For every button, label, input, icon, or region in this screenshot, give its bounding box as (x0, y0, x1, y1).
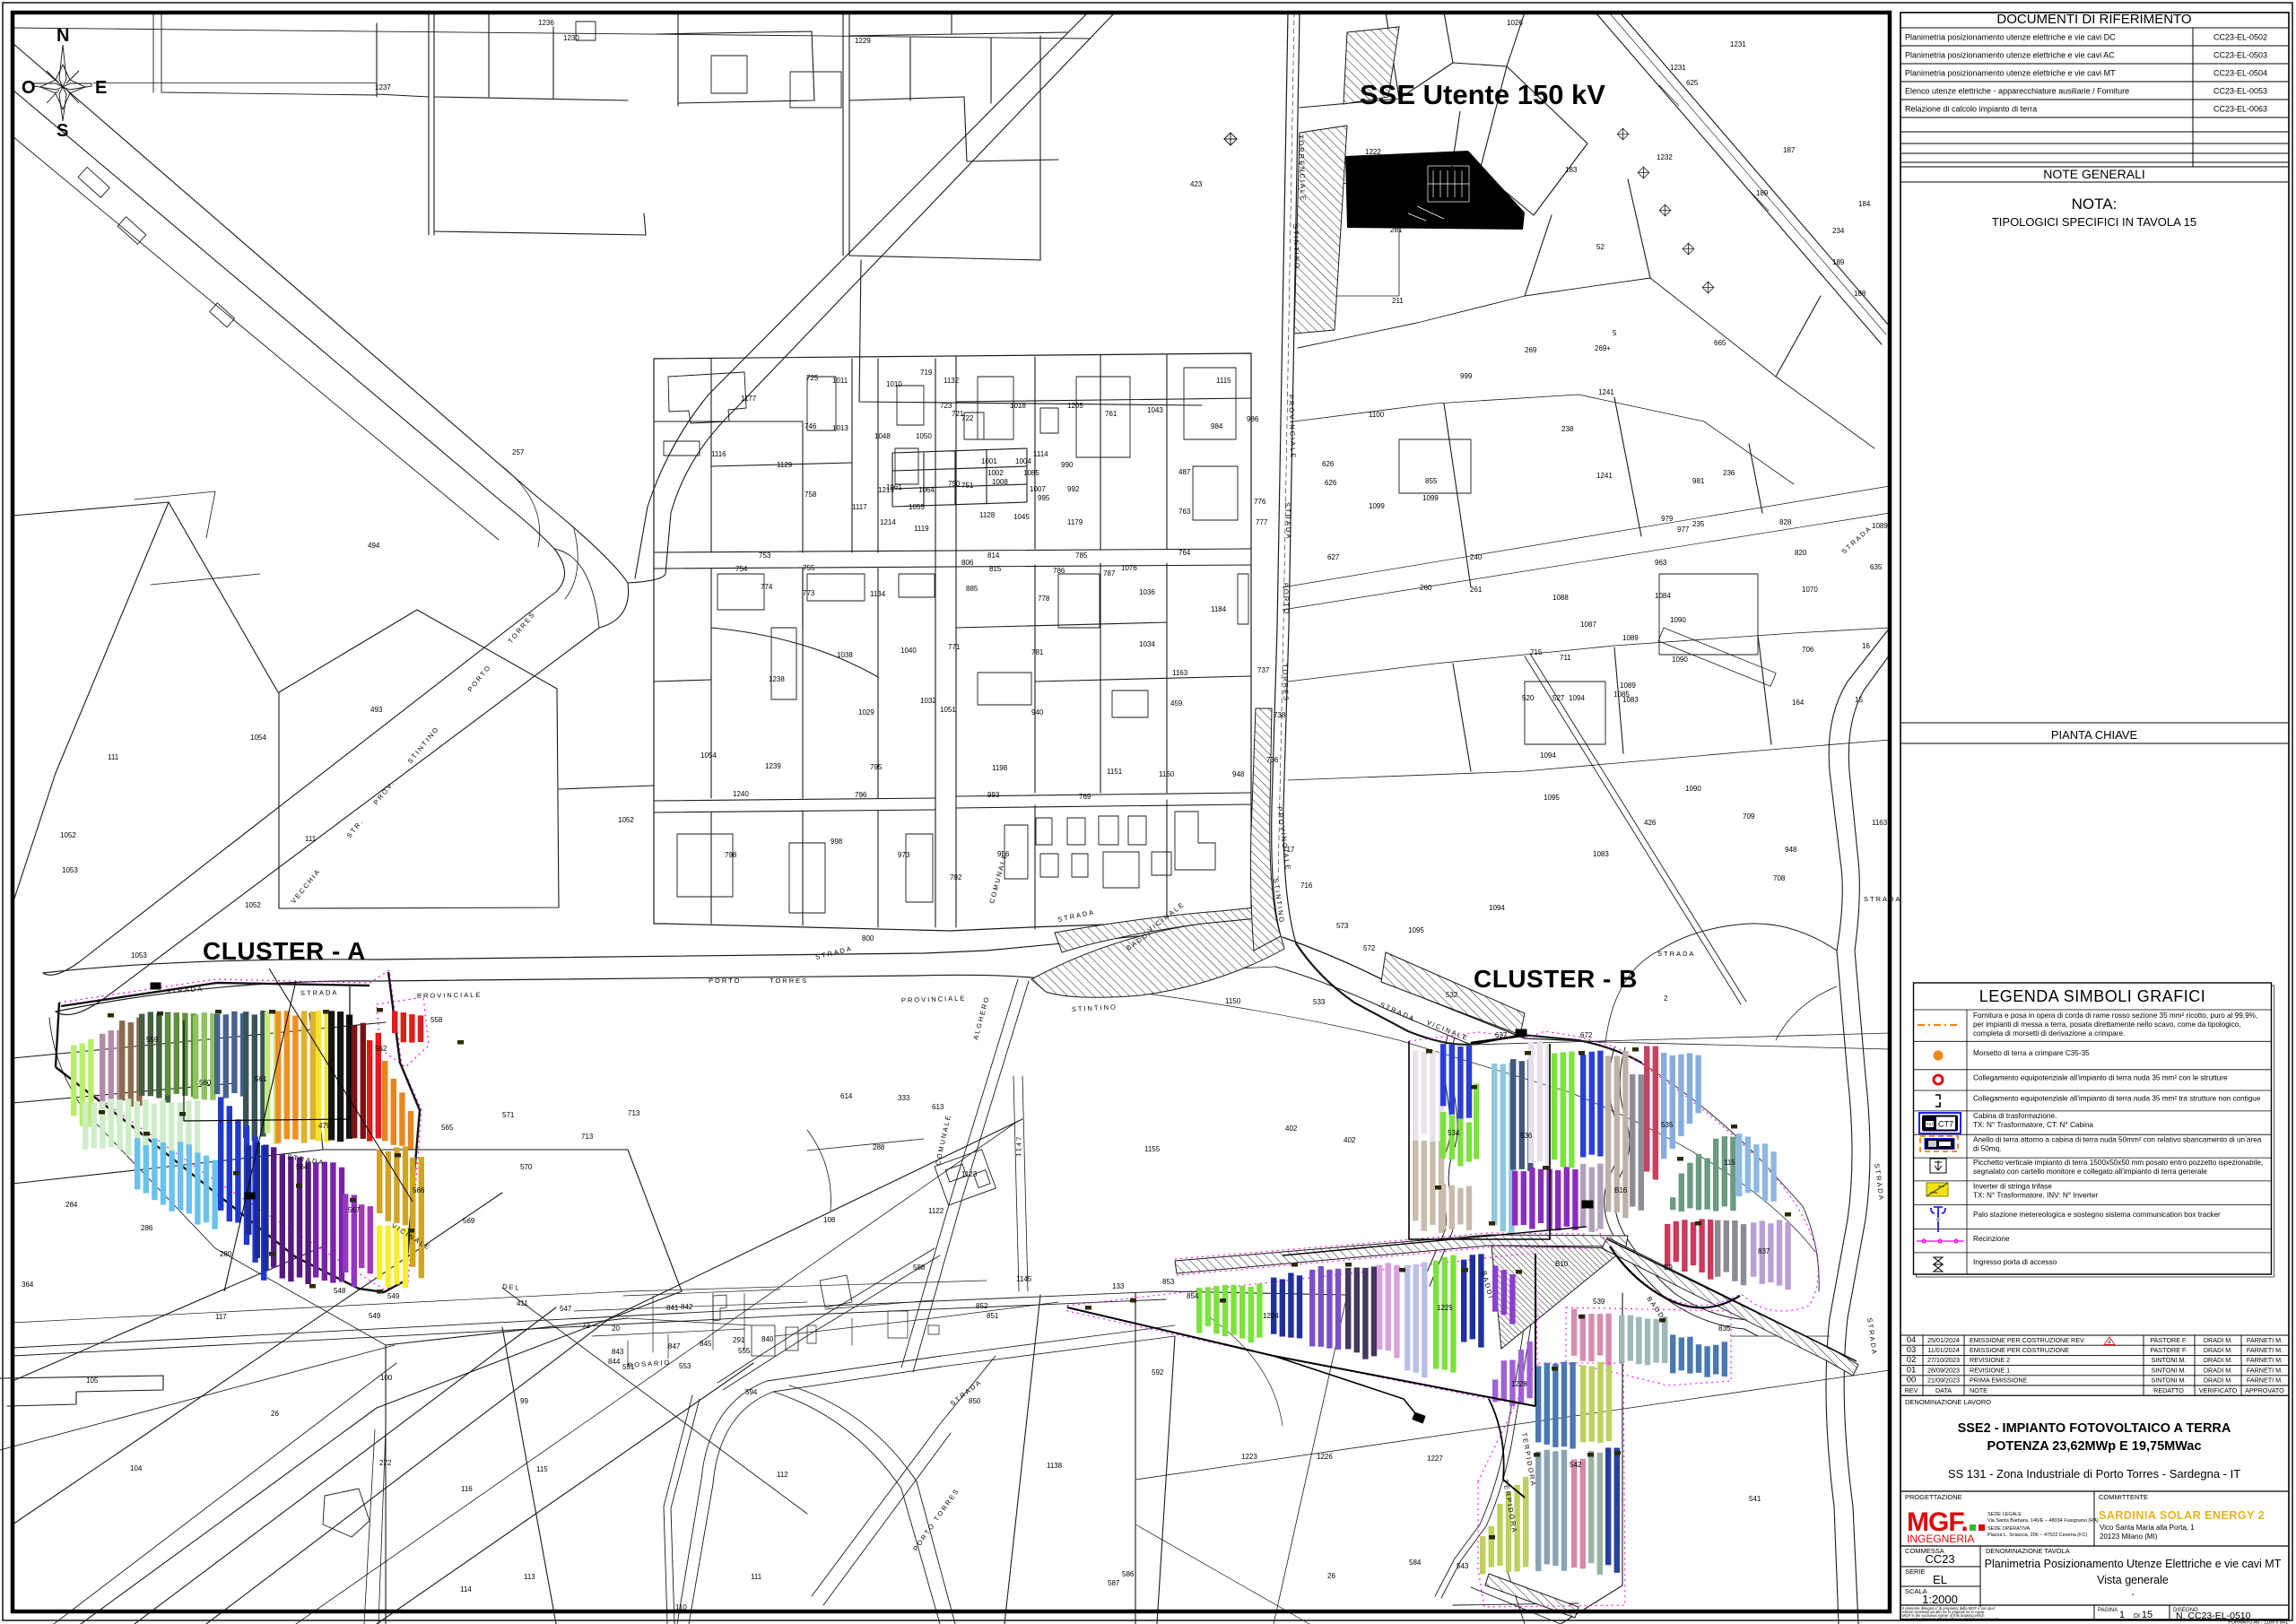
svg-text:CLUSTER - A: CLUSTER - A (203, 937, 366, 965)
svg-text:1237: 1237 (375, 83, 391, 91)
svg-text:S: S (57, 121, 68, 141)
svg-text:1238: 1238 (769, 675, 785, 683)
svg-text:993: 993 (987, 791, 1000, 799)
svg-text:183: 183 (1565, 166, 1578, 174)
svg-text:111: 111 (305, 835, 317, 843)
svg-text:291: 291 (733, 1336, 745, 1344)
svg-text:DRADI M.: DRADI M. (2204, 1376, 2232, 1385)
svg-text:333: 333 (898, 1094, 910, 1102)
svg-text:1241: 1241 (1596, 472, 1613, 480)
svg-text:DENOMINAZIONE LAVORO: DENOMINAZIONE LAVORO (1905, 1398, 1991, 1406)
svg-text:SS 131 - Zona Industriale di P: SS 131 - Zona Industriale di Porto Torre… (1948, 1467, 2240, 1481)
svg-text:613: 613 (932, 1103, 944, 1111)
svg-text:573: 573 (1336, 922, 1349, 930)
svg-text:116: 116 (461, 1485, 473, 1493)
svg-text:Elenco utenze elettriche - app: Elenco utenze elettriche - apparecchiatu… (1905, 87, 2129, 96)
svg-text:520: 520 (1522, 694, 1535, 702)
svg-text:1119: 1119 (914, 525, 929, 533)
svg-text:-: - (2131, 1590, 2134, 1600)
svg-text:1231: 1231 (1730, 40, 1746, 48)
svg-text:Piazza L. Sciascia, 206 – 4752: Piazza L. Sciascia, 206 – 47522 Cesena (… (1987, 1533, 2087, 1538)
svg-text:402: 402 (1285, 1125, 1298, 1133)
svg-text:SARDINIA SOLAR ENERGY 2: SARDINIA SOLAR ENERGY 2 (2099, 1509, 2265, 1522)
svg-text:672: 672 (1580, 1031, 1593, 1039)
svg-text:117: 117 (215, 1313, 227, 1321)
svg-text:786: 786 (1053, 567, 1065, 575)
svg-text:571: 571 (502, 1111, 515, 1119)
svg-text:852: 852 (976, 1302, 988, 1310)
svg-text:di 50mq.: di 50mq. (1973, 1145, 2001, 1153)
svg-text:755: 755 (803, 564, 815, 572)
svg-text:25/01/2024: 25/01/2024 (1927, 1336, 1960, 1344)
svg-text:637: 637 (1495, 1031, 1508, 1039)
svg-text:STRADA: STRADA (1283, 502, 1292, 541)
svg-text:Vista generale: Vista generale (2097, 1574, 2169, 1586)
svg-text:572: 572 (1363, 944, 1376, 952)
svg-text:999: 999 (1460, 372, 1473, 380)
svg-text:EL: EL (1933, 1573, 1947, 1586)
svg-text:TX7: TX7 (1926, 1123, 1935, 1127)
svg-text:Cabina di trasformazione.: Cabina di trasformazione. (1973, 1112, 2057, 1120)
svg-text:1052: 1052 (618, 816, 634, 824)
svg-text:851: 851 (987, 1312, 999, 1320)
svg-text:1040: 1040 (900, 647, 917, 655)
svg-text:1223: 1223 (1241, 1453, 1257, 1461)
svg-text:781: 781 (1031, 648, 1044, 656)
svg-text:B9: B9 (1664, 1264, 1673, 1272)
svg-text:843: 843 (612, 1348, 624, 1356)
svg-text:Picchetto verticale impianto d: Picchetto verticale impianto di terra 15… (1973, 1159, 2263, 1167)
svg-text:00: 00 (1907, 1376, 1917, 1385)
svg-text:986: 986 (1247, 415, 1259, 423)
svg-text:1007: 1007 (1030, 485, 1046, 493)
svg-text:112: 112 (777, 1471, 788, 1479)
svg-text:835: 835 (1718, 1324, 1731, 1333)
svg-text:627: 627 (1327, 553, 1340, 561)
svg-text:948: 948 (1232, 770, 1245, 778)
svg-text:1095: 1095 (1408, 926, 1424, 934)
svg-text:164: 164 (1792, 699, 1805, 707)
svg-text:FARNETI M.: FARNETI M. (2247, 1346, 2283, 1354)
svg-text:792: 792 (950, 873, 962, 881)
svg-text:769: 769 (1079, 793, 1091, 801)
svg-text:776: 776 (1254, 498, 1266, 506)
svg-text:847: 847 (668, 1342, 681, 1350)
svg-text:DENOMINAZIONE TAVOLA: DENOMINAZIONE TAVOLA (1986, 1547, 2070, 1555)
svg-text:1089: 1089 (1622, 634, 1639, 642)
svg-text:584: 584 (1409, 1559, 1422, 1567)
svg-text:963: 963 (1655, 559, 1667, 567)
svg-text:1089: 1089 (1620, 682, 1636, 690)
svg-text:820: 820 (1795, 549, 1807, 557)
svg-text:459: 459 (1170, 699, 1183, 708)
svg-text:746: 746 (804, 422, 817, 430)
svg-text:235: 235 (1692, 520, 1705, 528)
svg-text:592: 592 (1152, 1368, 1164, 1376)
svg-text:FARNETI M.: FARNETI M. (2247, 1356, 2283, 1364)
svg-text:940: 940 (1031, 708, 1044, 716)
svg-text:280: 280 (220, 1250, 232, 1258)
svg-text:1099: 1099 (1422, 494, 1439, 502)
svg-text:CLUSTER - B: CLUSTER - B (1474, 965, 1638, 993)
svg-text:16: 16 (1862, 642, 1870, 650)
svg-text:15: 15 (1855, 696, 1863, 704)
svg-text:706: 706 (1802, 646, 1814, 654)
svg-text:EMISSIONE PER COSTRUZIONE: EMISSIONE PER COSTRUZIONE (1970, 1346, 2069, 1354)
svg-text:990: 990 (1061, 461, 1074, 469)
svg-text:853: 853 (1162, 1278, 1175, 1286)
svg-text:719: 719 (920, 369, 933, 377)
svg-text:03: 03 (1907, 1345, 1917, 1355)
svg-text:555: 555 (738, 1347, 751, 1355)
svg-text:716: 716 (1300, 881, 1313, 890)
svg-text:1236: 1236 (538, 19, 554, 27)
svg-text:184: 184 (1858, 200, 1871, 208)
svg-text:111: 111 (751, 1573, 762, 1581)
svg-text:614: 614 (840, 1092, 853, 1100)
svg-text:850: 850 (969, 1397, 981, 1405)
svg-text:272: 272 (379, 1459, 392, 1467)
svg-text:1179: 1179 (1067, 518, 1083, 526)
svg-text:1045: 1045 (1013, 513, 1030, 521)
svg-text:713: 713 (628, 1109, 640, 1117)
svg-text:984: 984 (1211, 422, 1223, 430)
svg-text:STINTINO: STINTINO (1291, 224, 1301, 270)
svg-text:133: 133 (1112, 1282, 1125, 1290)
svg-text:1229: 1229 (855, 37, 871, 45)
svg-text:VERIFICATO: VERIFICATO (2199, 1386, 2238, 1394)
svg-text:1038: 1038 (837, 651, 853, 659)
svg-text:105: 105 (86, 1376, 99, 1385)
svg-text:99: 99 (520, 1397, 528, 1405)
svg-text:1231: 1231 (1670, 64, 1686, 72)
svg-text:549: 549 (387, 1292, 400, 1300)
svg-text:535: 535 (1661, 1121, 1674, 1129)
svg-text:1054: 1054 (250, 734, 266, 742)
svg-text:479: 479 (318, 1122, 331, 1130)
svg-text:1004: 1004 (1015, 457, 1031, 465)
svg-text:1214: 1214 (880, 518, 896, 526)
svg-text:402: 402 (1344, 1136, 1356, 1144)
svg-text:763: 763 (1178, 508, 1191, 516)
svg-text:1036: 1036 (1139, 588, 1155, 596)
svg-text:1050: 1050 (916, 432, 932, 440)
svg-text:533: 533 (1313, 998, 1326, 1006)
svg-text:1147: 1147 (1014, 1135, 1023, 1157)
svg-text:COMMITTENTE: COMMITTENTE (2099, 1493, 2148, 1501)
svg-text:REDATTO: REDATTO (2153, 1386, 2184, 1394)
svg-text:Ingresso porta di accesso: Ingresso porta di accesso (1973, 1258, 2057, 1266)
svg-text:1076: 1076 (1121, 564, 1137, 572)
svg-text:28/09/2023: 28/09/2023 (1927, 1366, 1960, 1374)
svg-text:855: 855 (1425, 477, 1438, 485)
svg-text:1:2000: 1:2000 (1922, 1593, 1958, 1606)
svg-text:Planimetria posizionamento ute: Planimetria posizionamento utenze elettr… (1905, 51, 2115, 60)
svg-text:715: 715 (1530, 648, 1543, 656)
svg-text:364: 364 (22, 1281, 34, 1289)
svg-text:541: 541 (1749, 1495, 1761, 1503)
svg-text:B10: B10 (1555, 1260, 1569, 1268)
svg-text:284: 284 (65, 1201, 78, 1209)
svg-text:777: 777 (1256, 518, 1268, 526)
svg-text:758: 758 (804, 491, 817, 499)
svg-text:TORRES: TORRES (1281, 664, 1290, 702)
svg-text:20123 Milano (MI): 20123 Milano (MI) (2100, 1533, 2158, 1541)
svg-text:1001: 1001 (981, 457, 997, 465)
svg-text:TIPOLOGICI SPECIFICI IN TAVOLA: TIPOLOGICI SPECIFICI IN TAVOLA 15 (1992, 215, 2196, 229)
svg-text:PASTORE F.: PASTORE F. (2150, 1346, 2187, 1354)
svg-text:562: 562 (375, 1045, 387, 1053)
svg-text:PROVINCIALE: PROVINCIALE (417, 991, 483, 1000)
svg-text:DRADI M.: DRADI M. (2204, 1336, 2232, 1344)
svg-text:260: 260 (1420, 584, 1432, 592)
svg-text:1026: 1026 (1507, 19, 1523, 27)
svg-text:1225: 1225 (1437, 1304, 1453, 1312)
svg-text:992: 992 (1067, 485, 1080, 493)
svg-text:B16: B16 (1614, 1186, 1628, 1194)
svg-text:543: 543 (1457, 1562, 1469, 1570)
svg-text:FORMATO A0 - 1189 x 841: FORMATO A0 - 1189 x 841 (2228, 1620, 2288, 1624)
svg-text:REVISIONE 1: REVISIONE 1 (1970, 1366, 2010, 1374)
svg-text:764: 764 (1178, 549, 1191, 557)
svg-text:1129: 1129 (777, 461, 793, 469)
svg-text:269+: 269+ (1595, 344, 1611, 352)
svg-text:725: 725 (806, 374, 819, 382)
svg-text:1198: 1198 (992, 764, 1008, 772)
svg-text:566: 566 (413, 1186, 425, 1194)
svg-text:547: 547 (560, 1305, 572, 1313)
svg-text:787: 787 (1103, 569, 1116, 578)
svg-text:559: 559 (146, 1036, 159, 1044)
svg-text:722: 722 (961, 414, 974, 422)
svg-text:814: 814 (987, 551, 1000, 560)
svg-text:1094: 1094 (1540, 751, 1556, 760)
svg-text:114: 114 (460, 1585, 472, 1594)
svg-text:750: 750 (948, 480, 961, 488)
svg-text:1145: 1145 (1016, 1275, 1032, 1283)
svg-text:1052: 1052 (245, 901, 261, 909)
svg-text:1115: 1115 (1216, 377, 1231, 385)
svg-text:565: 565 (441, 1124, 454, 1132)
svg-text:1184: 1184 (1211, 605, 1227, 613)
svg-text:635: 635 (1870, 563, 1883, 571)
svg-text:1160: 1160 (1159, 770, 1175, 778)
svg-text:286: 286 (141, 1224, 153, 1232)
svg-text:1090: 1090 (1670, 616, 1686, 624)
svg-text:11/01/2024: 11/01/2024 (1927, 1346, 1959, 1354)
svg-text:PAGINA: PAGINA (2098, 1608, 2118, 1613)
svg-text:1230: 1230 (563, 34, 579, 42)
svg-text:DRADI M.: DRADI M. (2204, 1356, 2232, 1364)
svg-text:EMISSIONE PER COSTRUZIONE REV.: EMISSIONE PER COSTRUZIONE REV. (1970, 1336, 2085, 1344)
svg-text:854: 854 (1187, 1292, 1199, 1300)
svg-text:736: 736 (1266, 756, 1279, 764)
svg-text:711: 711 (1560, 654, 1571, 662)
svg-text:586: 586 (1122, 1570, 1135, 1578)
svg-text:115: 115 (1724, 1159, 1735, 1167)
svg-text:532: 532 (1446, 991, 1458, 999)
svg-text:1090: 1090 (1672, 656, 1688, 664)
svg-text:737: 737 (1257, 666, 1270, 674)
svg-text:995: 995 (1038, 494, 1050, 502)
svg-text:240: 240 (1470, 553, 1483, 561)
svg-text:DATA: DATA (1935, 1386, 1952, 1394)
svg-text:04: 04 (1907, 1335, 1917, 1345)
svg-text:588: 588 (913, 1264, 926, 1272)
svg-text:1241: 1241 (1598, 388, 1614, 396)
svg-text:288: 288 (873, 1143, 885, 1151)
svg-text:SSE2 - IMPIANTO FOTOVOLTAICO A: SSE2 - IMPIANTO FOTOVOLTAICO A TERRA (1958, 1421, 2231, 1436)
svg-text:1013: 1013 (832, 424, 848, 432)
svg-text:845: 845 (700, 1340, 712, 1348)
svg-text:SINTONI M.: SINTONI M. (2151, 1376, 2186, 1385)
svg-text:100: 100 (380, 1374, 393, 1382)
svg-text:1018: 1018 (1010, 402, 1026, 410)
svg-text:1053: 1053 (131, 951, 147, 960)
svg-text:569: 569 (463, 1217, 475, 1225)
svg-text:CC23-EL-0063: CC23-EL-0063 (2213, 105, 2267, 114)
svg-text:773: 773 (803, 589, 815, 597)
svg-text:723: 723 (940, 402, 952, 410)
svg-text:626: 626 (1325, 479, 1337, 487)
svg-text:1083: 1083 (1593, 850, 1609, 858)
svg-text:1114: 1114 (1033, 450, 1048, 458)
svg-text:APPROVATO: APPROVATO (2245, 1386, 2284, 1394)
svg-text:PROGETTAZIONE: PROGETTAZIONE (1905, 1493, 1962, 1501)
svg-text:798: 798 (725, 851, 737, 859)
svg-text:1043: 1043 (1147, 406, 1163, 414)
svg-text:236: 236 (1723, 469, 1735, 477)
svg-text:771: 771 (948, 643, 961, 651)
svg-text:1088: 1088 (1552, 594, 1569, 602)
svg-text:N: N (57, 26, 69, 46)
svg-text:815: 815 (989, 565, 1002, 573)
svg-text:1240: 1240 (733, 790, 749, 798)
svg-text:1094: 1094 (1489, 904, 1505, 912)
svg-text:DI: DI (2134, 1613, 2140, 1620)
svg-text:1051: 1051 (940, 706, 956, 714)
svg-text:Planimetria posizionamento ute: Planimetria posizionamento utenze elettr… (1905, 33, 2116, 42)
svg-text:1163: 1163 (1172, 669, 1188, 677)
svg-text:Planimetria posizionamento ute: Planimetria posizionamento utenze elettr… (1905, 69, 2116, 78)
svg-text:979: 979 (1661, 515, 1674, 523)
svg-text:1055: 1055 (909, 503, 925, 511)
svg-text:DRADI M.: DRADI M. (2204, 1366, 2232, 1374)
svg-text:2: 2 (1664, 994, 1668, 1003)
svg-text:DOCUMENTI DI RIFERIMENTO: DOCUMENTI DI RIFERIMENTO (1996, 12, 2191, 27)
svg-text:26: 26 (271, 1410, 279, 1418)
svg-text:1: 1 (2119, 1610, 2125, 1620)
svg-text:1052: 1052 (60, 831, 76, 839)
svg-text:104: 104 (130, 1464, 143, 1472)
svg-text:564: 564 (296, 1163, 309, 1171)
svg-text:570: 570 (520, 1163, 533, 1171)
svg-text:REV: REV (1905, 1386, 1918, 1394)
svg-text:527: 527 (1552, 694, 1565, 702)
svg-text:800: 800 (862, 934, 874, 942)
svg-text:594: 594 (745, 1388, 758, 1396)
svg-text:O: O (22, 78, 36, 98)
svg-text:828: 828 (1779, 518, 1792, 526)
svg-text:108: 108 (823, 1216, 836, 1224)
svg-text:738: 738 (1274, 711, 1286, 719)
svg-text:665: 665 (1714, 339, 1726, 347)
svg-text:795: 795 (870, 763, 883, 771)
svg-text:1155: 1155 (1144, 1145, 1161, 1153)
svg-text:411: 411 (517, 1299, 528, 1307)
svg-text:Vico Santa Maria alla Porta, 1: Vico Santa Maria alla Porta, 1 (2100, 1524, 2195, 1532)
svg-text:CT7: CT7 (1938, 1120, 1953, 1129)
svg-text:753: 753 (759, 551, 771, 560)
svg-text:02: 02 (1907, 1355, 1917, 1365)
svg-text:SERIE: SERIE (1905, 1568, 1926, 1576)
svg-text:189: 189 (1756, 189, 1769, 197)
svg-text:709: 709 (1743, 812, 1755, 821)
svg-text:1224: 1224 (1263, 1312, 1279, 1320)
svg-text:01: 01 (1907, 1365, 1917, 1375)
svg-text:1122: 1122 (928, 1207, 944, 1215)
svg-text:1134: 1134 (870, 590, 886, 598)
svg-text:26: 26 (1327, 1572, 1335, 1580)
svg-text:548: 548 (334, 1287, 346, 1295)
svg-text:STRADA: STRADA (1657, 950, 1695, 958)
svg-text:POTENZA 23,62MWp E 19,75MWac: POTENZA 23,62MWp E 19,75MWac (1987, 1439, 2201, 1454)
svg-text:Inverter di stringa trifase: Inverter di stringa trifase (1973, 1183, 2052, 1191)
svg-text:1029: 1029 (858, 708, 874, 716)
svg-text:553: 553 (679, 1362, 691, 1370)
svg-text:Planimetria Posizionamento Ute: Planimetria Posizionamento Utenze Elettr… (1985, 1558, 2282, 1570)
svg-text:542: 542 (1570, 1461, 1582, 1469)
svg-text:DRADI M.: DRADI M. (2204, 1346, 2232, 1354)
svg-text:1034: 1034 (1139, 640, 1155, 648)
svg-text:NOTA:: NOTA: (2072, 195, 2118, 213)
svg-text:1177: 1177 (741, 395, 757, 403)
svg-text:796: 796 (855, 791, 867, 799)
svg-text:837: 837 (1758, 1247, 1770, 1255)
svg-text:1084: 1084 (1655, 592, 1671, 600)
svg-text:1232: 1232 (1657, 153, 1673, 161)
svg-text:21/09/2023: 21/09/2023 (1927, 1376, 1960, 1385)
svg-text:SEDE OPERATIVA: SEDE OPERATIVA (1987, 1526, 2031, 1532)
svg-text:Relazione di calcolo impianto: Relazione di calcolo impianto di terra (1905, 105, 2037, 114)
svg-text:751: 751 (961, 482, 974, 490)
svg-text:CC23-EL-0504: CC23-EL-0504 (2213, 69, 2267, 78)
svg-text:626: 626 (1322, 460, 1335, 468)
svg-text:1087: 1087 (1580, 621, 1596, 629)
svg-text:STRADA: STRADA (1864, 895, 1901, 903)
svg-text:1117: 1117 (852, 503, 867, 511)
svg-text:SEDE LEGALE: SEDE LEGALE (1987, 1512, 2022, 1517)
svg-text:1226: 1226 (1317, 1453, 1333, 1461)
svg-text:1053: 1053 (62, 866, 78, 874)
svg-text:754: 754 (735, 565, 748, 573)
svg-text:1100: 1100 (1369, 411, 1385, 419)
svg-text:FARNETI M.: FARNETI M. (2247, 1366, 2283, 1374)
svg-text:1095: 1095 (1544, 794, 1560, 802)
svg-text:1089: 1089 (1872, 522, 1888, 530)
svg-text:FARNETI M.: FARNETI M. (2247, 1336, 2283, 1344)
svg-text:115: 115 (536, 1465, 548, 1473)
svg-text:1010: 1010 (886, 380, 902, 388)
svg-text:PASTORE F.: PASTORE F. (2150, 1336, 2187, 1344)
svg-text:1094: 1094 (1569, 694, 1585, 702)
svg-text:840: 840 (761, 1335, 774, 1343)
svg-text:1116: 1116 (711, 450, 726, 458)
svg-text:1123: 1123 (961, 1170, 978, 1178)
svg-text:1032: 1032 (920, 697, 936, 705)
svg-text:PIANTA CHIAVE: PIANTA CHIAVE (2051, 728, 2138, 742)
svg-text:494: 494 (368, 542, 380, 550)
